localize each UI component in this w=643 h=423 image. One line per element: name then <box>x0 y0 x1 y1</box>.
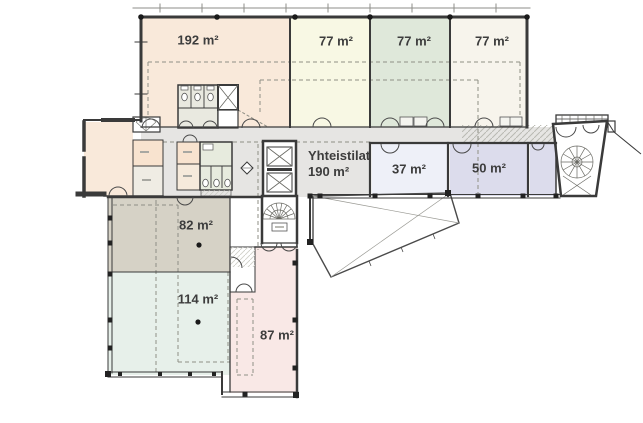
label-room-77-left: 77 m² <box>319 34 353 49</box>
stair-room-right <box>553 121 607 196</box>
label-room-77-right: 77 m² <box>475 34 509 49</box>
wc-block-mid <box>200 142 232 196</box>
elevator-shaft <box>263 141 296 196</box>
room-114-area <box>108 272 230 375</box>
room-right-unlabeled-area <box>530 144 556 196</box>
label-room-37: 37 m² <box>392 162 426 177</box>
floorplan-drawing <box>0 0 643 423</box>
label-common-area: Yhteistilat 190 m² <box>308 148 370 180</box>
label-room-77-middle: 77 m² <box>397 34 431 49</box>
label-room-50: 50 m² <box>472 161 506 176</box>
common-area-size: 190 m² <box>308 164 370 180</box>
floorplan-canvas: 192 m² 77 m² 77 m² 77 m² Yhteistilat 190… <box>0 0 643 423</box>
label-room-87: 87 m² <box>260 328 294 343</box>
eave-line <box>133 4 530 12</box>
shaft-top <box>218 85 238 128</box>
label-room-82: 82 m² <box>179 218 213 233</box>
label-room-192: 192 m² <box>177 33 218 48</box>
entry-room-left-area <box>84 122 133 196</box>
spiral-stair-center <box>263 203 295 231</box>
room-82-area <box>108 197 230 272</box>
entrance-canopy <box>313 193 459 277</box>
label-room-114: 114 m² <box>178 292 218 307</box>
common-area-title: Yhteistilat <box>308 148 370 164</box>
